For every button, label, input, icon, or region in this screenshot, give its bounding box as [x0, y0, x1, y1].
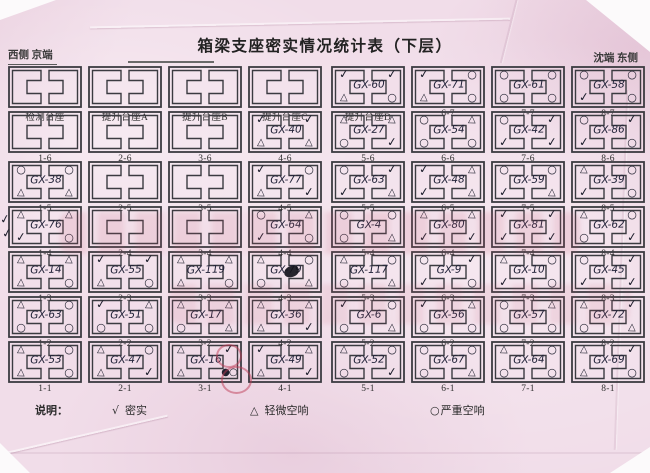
cell-label: 4-1 — [244, 384, 326, 394]
mark-circle-icon: ○ — [541, 276, 563, 289]
gx-number: GX-76 — [12, 218, 80, 232]
gx-number: GX-42 — [495, 123, 563, 137]
gx-number: GX-63 — [335, 173, 403, 187]
mark-circle-icon: ○ — [381, 91, 403, 104]
mark-triangle-icon: △ — [10, 186, 32, 200]
gx-number: GX-36 — [252, 308, 320, 322]
gx-number: GX-71 — [415, 78, 483, 92]
bearing-cell: 3-6 — [168, 111, 242, 167]
gx-number: GX-119 — [172, 263, 240, 277]
legend-item-slight-hollow: △轻微空响 — [250, 402, 308, 418]
gx-number: GX-57 — [495, 308, 563, 322]
mark-check-icon: ✓ — [460, 230, 483, 245]
gx-number: GX-49 — [252, 353, 320, 367]
mark-check-icon: ✓ — [297, 365, 320, 380]
gx-number: GX-39 — [575, 173, 643, 187]
mark-circle-icon: ○ — [218, 276, 240, 289]
mark-circle-icon: ○ — [493, 366, 515, 379]
bearing-cell: △△○✓GX-275-6 — [331, 111, 405, 167]
gx-number: GX-86 — [575, 123, 643, 137]
mark-circle-icon: ○ — [461, 91, 483, 104]
mark-triangle-icon: △ — [573, 366, 595, 380]
gx-number: GX-117 — [335, 263, 403, 277]
gx-number: GX-59 — [495, 173, 563, 187]
gx-number: GX-48 — [415, 173, 483, 187]
gx-number: GX-62 — [575, 218, 643, 232]
mark-circle-icon: ○ — [58, 276, 80, 289]
triangle-icon: △ — [250, 404, 258, 417]
mark-triangle-icon: △ — [90, 276, 112, 290]
gx-number: GX-80 — [415, 218, 483, 232]
gx-number: GX-56 — [415, 308, 483, 322]
mark-triangle-icon: △ — [250, 136, 272, 150]
bearing-cell: △✓△○GX-698-1 — [571, 341, 645, 397]
gx-number: GX-54 — [415, 123, 483, 137]
gx-number: GX-64 — [252, 218, 320, 232]
mark-triangle-icon: △ — [170, 276, 192, 290]
bearing-cell: △○○○GX-647-1 — [491, 341, 565, 397]
gx-number: GX-60 — [335, 78, 403, 92]
cell-label: 6-1 — [407, 384, 489, 394]
legend-item-text: 密实 — [125, 405, 147, 417]
bearing-cell: ○○○△GX-676-1 — [411, 341, 485, 397]
gx-number: GX-69 — [575, 353, 643, 367]
mark-triangle-icon: △ — [381, 186, 403, 200]
mark-circle-icon: ○ — [573, 321, 595, 334]
mark-circle-icon: ○ — [621, 186, 643, 199]
bearing-cell: ○△○○GX-546-6 — [411, 111, 485, 167]
gx-number: GX-17 — [172, 308, 240, 322]
mark-circle-icon: ○ — [90, 321, 112, 334]
mark-circle-icon: ○ — [493, 321, 515, 334]
mark-circle-icon: ○ — [333, 231, 355, 244]
gx-number: GX-10 — [495, 263, 563, 277]
gx-number: GX-63 — [12, 308, 80, 322]
mark-circle-icon: ○ — [413, 136, 435, 149]
mark-circle-icon: ○ — [541, 366, 563, 379]
gx-number: GX-14 — [12, 263, 80, 277]
mark-triangle-icon: △ — [170, 366, 192, 380]
mark-circle-icon: ○ — [413, 366, 435, 379]
gx-number: GX-4 — [335, 218, 403, 232]
mark-circle-icon: ○ — [573, 231, 595, 244]
bearing-cell: 1-6 — [8, 111, 82, 167]
mark-triangle-icon: △ — [10, 276, 32, 290]
mark-triangle-icon: △ — [381, 231, 403, 245]
mark-circle-icon: ○ — [541, 91, 563, 104]
legend-label: 说明： — [35, 402, 68, 418]
gx-number: GX-81 — [495, 218, 563, 232]
mark-triangle-icon: △ — [218, 321, 240, 335]
bearing-cell: ○✓✓✓GX-427-6 — [491, 111, 565, 167]
mark-circle-icon: ○ — [138, 321, 160, 334]
mark-circle-icon: ○ — [461, 136, 483, 149]
bearing-cell: 2-6 — [88, 111, 162, 167]
mark-circle-icon: ○ — [58, 366, 80, 379]
gx-number: GX-38 — [12, 173, 80, 187]
bearing-cell: ✓△△✓GX-494-1 — [248, 341, 322, 397]
cell-label: 5-1 — [327, 384, 409, 394]
gx-number: GX-45 — [575, 263, 643, 277]
mark-circle-icon: ○ — [333, 276, 355, 289]
cell-label: 3-1 — [164, 384, 246, 394]
mark-circle-icon: ○ — [10, 321, 32, 334]
mark-circle-icon: ○ — [333, 366, 355, 379]
orientation-label-west-beijing-end: 西侧 京端 — [8, 47, 57, 65]
margin-line — [128, 61, 214, 63]
bearing-cell: ✓✓△△GX-404-6 — [248, 111, 322, 167]
mark-check-icon: ✓ — [620, 275, 643, 290]
gx-number: GX-16 — [172, 353, 240, 367]
gx-number: GX-72 — [575, 308, 643, 322]
legend-item-text: 轻微空响 — [264, 405, 308, 417]
mark-triangle-icon: △ — [90, 366, 112, 380]
bearing-cell: △○○✓GX-525-1 — [331, 341, 405, 397]
legend-item-text: 严重空响 — [441, 405, 485, 417]
bearing-cell: △○△✓GX-472-1 — [88, 341, 162, 397]
bearing-cell: △✓△●○GX-163-1 — [168, 341, 242, 397]
mark-triangle-icon: △ — [413, 91, 435, 105]
bearing-cell: ○✓✓○GX-868-6 — [571, 111, 645, 167]
gx-number: GX-77 — [252, 173, 320, 187]
cell-label: 2-1 — [84, 384, 166, 394]
orientation-label-shenyang-end-east: 沈端 东侧 — [593, 50, 638, 65]
check-icon: √ — [112, 404, 119, 417]
cell-label: 8-1 — [567, 384, 649, 394]
mark-check-icon: ✓ — [297, 320, 320, 335]
mark-circle-icon: ○ — [333, 321, 355, 334]
mark-check-icon: ✓ — [297, 185, 320, 200]
mark-check-icon: ✓ — [137, 365, 160, 380]
mark-circle-icon: ○ — [461, 276, 483, 289]
gx-number: GX-64 — [495, 353, 563, 367]
gx-number: GX-9 — [415, 263, 483, 277]
mark-circle-icon: ○ — [621, 366, 643, 379]
gx-number: GX-47 — [92, 353, 160, 367]
mark-circle-icon: ○ — [413, 321, 435, 334]
legend-item-dense: √密实 — [112, 402, 147, 418]
page-title: 箱梁支座密实情况统计表（下层） — [0, 34, 650, 56]
mark-triangle-icon: △ — [381, 276, 403, 290]
mark-triangle-icon: △ — [250, 366, 272, 380]
gx-number: GX-6 — [335, 308, 403, 322]
mark-circle-icon: ○ — [298, 231, 320, 244]
mark-triangle-icon: △ — [621, 321, 643, 335]
circle-icon: ○ — [430, 404, 440, 417]
mark-triangle-icon: △ — [333, 91, 355, 105]
mark-triangle-icon: △ — [541, 186, 563, 200]
mark-circle-icon: ○ — [621, 91, 643, 104]
mark-triangle-icon: △ — [298, 276, 320, 290]
cell-label: 1-1 — [4, 384, 86, 394]
mark-circle-icon: ○ — [138, 276, 160, 289]
mark-circle-icon: ○ — [621, 136, 643, 149]
mark-triangle-icon: △ — [461, 186, 483, 200]
mark-blob-icon: ●○ — [218, 366, 240, 379]
mark-triangle-icon: △ — [250, 186, 272, 200]
legend: 说明： √密实 △轻微空响 ○严重空响 — [0, 402, 650, 422]
mark-circle-icon: ○ — [493, 91, 515, 104]
gx-number: GX-51 — [92, 308, 160, 322]
gx-number: GX-52 — [335, 353, 403, 367]
gx-number: GX-40 — [252, 123, 320, 137]
gx-number: GX-53 — [12, 353, 80, 367]
mark-check-icon: ✓ — [380, 135, 403, 150]
mark-circle-icon: ○ — [461, 321, 483, 334]
mark-circle-icon: ○ — [170, 321, 192, 334]
legend-item-severe-hollow: ○严重空响 — [430, 402, 485, 418]
mark-check-icon: ✓ — [540, 230, 563, 245]
gx-number: GX-61 — [495, 78, 563, 92]
mark-check-icon: ✓ — [380, 365, 403, 380]
stray-mark-check-icon: ✓ — [1, 225, 13, 241]
scanned-paper: 箱梁支座密实情况统计表（下层） 西侧 京端 沈端 东侧 检测台座提升台座A提升台… — [0, 0, 650, 473]
bearing-cell: △○△○GX-531-1 — [8, 341, 82, 397]
mark-triangle-icon: △ — [58, 186, 80, 200]
mark-triangle-icon: △ — [298, 136, 320, 150]
cell-label: 7-1 — [487, 384, 569, 394]
mark-check-icon: ✓ — [620, 230, 643, 245]
gx-number: GX-67 — [415, 353, 483, 367]
mark-circle-icon: ○ — [333, 136, 355, 149]
mark-circle-icon: ○ — [58, 321, 80, 334]
mark-triangle-icon: △ — [10, 366, 32, 380]
mark-circle-icon: ○ — [58, 231, 80, 244]
mark-triangle-icon: △ — [250, 321, 272, 335]
mark-circle-icon: ○ — [250, 276, 272, 289]
mark-triangle-icon: △ — [461, 366, 483, 380]
gx-number: GX-58 — [575, 78, 643, 92]
mark-check-icon: ✓ — [540, 135, 563, 150]
gx-number: GX-55 — [92, 263, 160, 277]
mark-circle-icon: ○ — [541, 321, 563, 334]
mark-triangle-icon: △ — [381, 321, 403, 335]
gx-number: GX-27 — [335, 123, 403, 137]
